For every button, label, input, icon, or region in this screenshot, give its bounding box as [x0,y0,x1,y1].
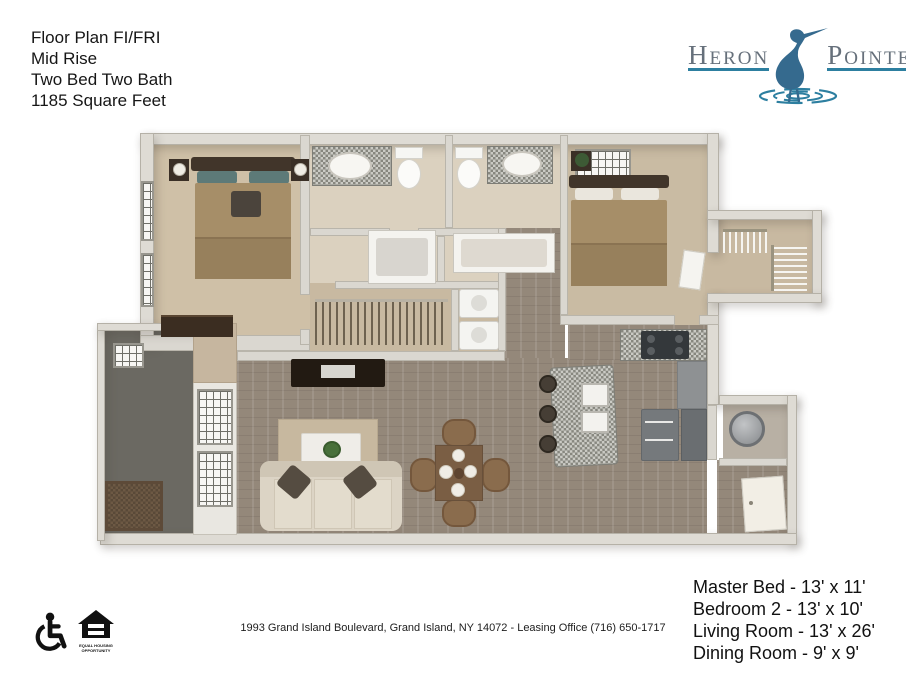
tv-component [321,365,355,378]
living-window-icon [197,389,233,445]
master-window-icon [141,181,154,241]
heron-bird-icon [755,24,841,108]
plan-name: Floor Plan FI/FRI [31,27,172,48]
fridge-handle [645,439,673,441]
bar-stool [539,375,557,393]
burner [647,347,655,355]
fridge-handle [645,421,673,423]
lamp-icon [294,163,307,176]
burner [675,335,683,343]
wall [437,236,445,283]
closet2-hangers [771,245,807,291]
floor-plan [85,133,822,560]
kitchen-cabinet [681,409,707,461]
dimension-bedroom-2: Bedroom 2 - 13' x 10' [693,598,875,620]
water-heater-icon [729,411,765,447]
plan-bed-bath: Two Bed Two Bath [31,69,172,90]
plan-building-type: Mid Rise [31,48,172,69]
wall [707,210,822,220]
dining-chair [442,419,476,447]
wall [560,315,675,325]
toilet-tank [455,147,483,159]
burner [647,335,655,343]
island-sink [581,411,609,433]
bed-pillow [621,188,659,200]
dryer-door [471,327,487,343]
dining-chair [410,458,438,492]
balcony-mat [105,481,163,531]
master-tub-basin [376,238,428,276]
closet-hangers [315,299,448,345]
bar-stool [539,405,557,423]
toilet-icon [397,159,421,189]
wall [707,133,719,253]
refrigerator [641,409,679,461]
sink-icon [328,152,372,180]
dimension-living-room: Living Room - 13' x 26' [693,620,875,642]
bedroom2-headboard [569,175,669,188]
wall [699,315,719,325]
wall [560,135,568,315]
kitchen-counter-side [677,361,707,409]
dresser [161,315,233,337]
bedroom2-blanket [571,243,667,286]
centerpiece [454,468,464,479]
plate-icon [452,449,465,462]
toilet-tank [395,147,423,159]
sofa-back [260,461,402,477]
wall [445,135,453,228]
dimension-dining-room: Dining Room - 9' x 9' [693,642,875,664]
closet2-hangers [723,229,767,253]
room-dimensions: Master Bed - 13' x 11' Bedroom 2 - 13' x… [693,576,875,664]
toilet-icon [457,159,481,189]
sink-icon [502,151,542,177]
lamp-icon [173,163,186,176]
bed-throw [231,191,261,217]
plan-info: Floor Plan FI/FRI Mid Rise Two Bed Two B… [31,27,172,111]
wall [719,458,787,466]
wall [707,293,822,303]
heron-pointe-logo: Heron Pointe [688,26,898,112]
dimension-master-bed: Master Bed - 13' x 11' [693,576,875,598]
master-bed-blanket [195,237,291,279]
plan-square-feet: 1185 Square Feet [31,90,172,111]
bar-stool [539,435,557,453]
wall [787,395,797,543]
balcony-window-icon [113,343,144,368]
master-doorway [300,295,310,329]
burner [675,347,683,355]
dining-chair [482,458,510,492]
dining-chair [442,499,476,527]
wall [140,133,719,145]
plate-icon [451,483,465,497]
bedroom2-doorway [675,315,699,325]
wall [707,293,719,405]
master-window-icon [141,253,154,307]
wall [451,289,459,351]
island-sink [581,383,609,407]
door-knob [749,501,753,505]
plant-icon [323,441,341,458]
plate-icon [439,465,453,479]
wall [707,405,717,460]
living-window-icon [197,451,233,507]
equal-housing-text: EQUAL HOUSING OPPORTUNITY [76,643,116,653]
plate-icon [464,465,477,478]
wall [97,323,105,541]
plant-icon [575,153,589,167]
wall [719,395,797,405]
master-bed-headboard [191,157,295,171]
wall [300,329,310,345]
wall [812,210,822,303]
bed-pillow [575,188,613,200]
washer-door [471,295,487,311]
bath2-tub-basin [461,239,547,267]
entry-door [741,476,787,533]
